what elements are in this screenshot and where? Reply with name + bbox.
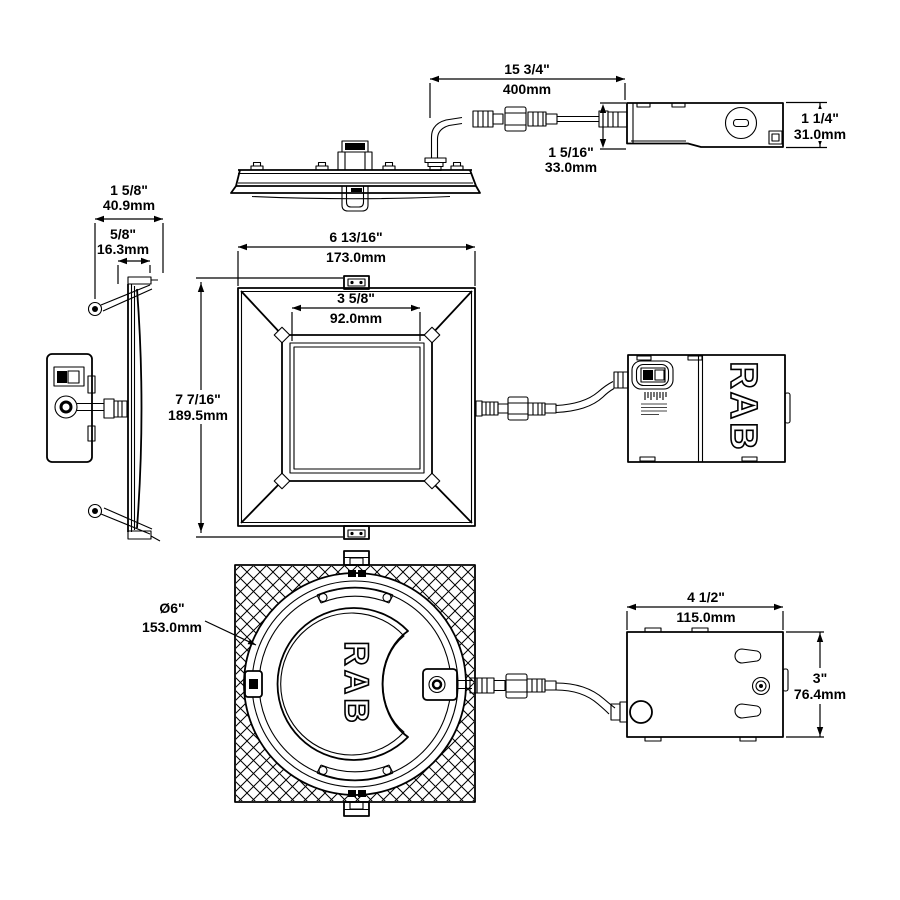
connector-whip-mid — [476, 372, 628, 420]
rab-logo-driver: RAB — [722, 361, 764, 452]
clip-bracket-bottom — [317, 765, 393, 781]
cable-bushing — [425, 158, 446, 163]
dim-jbox-width: 4 1/2" 115.0mm — [627, 589, 783, 630]
label-fine-print — [641, 404, 667, 415]
view-driver-box-top: RAB — [628, 355, 790, 462]
dim-aperture-width-inch: 3 5/8" — [337, 290, 375, 306]
dim-driver-height-mm: 31.0mm — [794, 126, 846, 142]
view-jbox-back — [627, 628, 788, 741]
dim-clip-spread-inch: 1 5/8" — [110, 182, 148, 198]
dim-face-height-inch: 7 7/16" — [175, 391, 221, 407]
cable — [432, 118, 463, 159]
dim-face-width-mm: 173.0mm — [326, 249, 386, 265]
dim-driver-height-inch: 1 1/4" — [801, 110, 839, 126]
dim-edge-thickness-mm: 16.3mm — [97, 241, 149, 257]
dim-aperture-width-mm: 92.0mm — [330, 310, 382, 326]
dim-aperture-width: 3 5/8" 92.0mm — [292, 290, 420, 341]
dim-whip-length: 15 3/4" 400mm — [430, 61, 625, 118]
view-panel-side-profile — [47, 277, 160, 541]
dim-face-height: 7 7/16" 189.5mm — [166, 278, 343, 537]
dim-face-height-mm: 189.5mm — [168, 407, 228, 423]
rab-logo-housing: RAB — [337, 641, 375, 727]
clip-bracket-top — [317, 587, 393, 603]
dim-jbox-width-mm: 115.0mm — [676, 609, 735, 625]
dim-edge-thickness: 5/8" 16.3mm — [97, 226, 150, 284]
technical-drawing-page: 15 3/4" 400mm 1 5/16" 33.0mm 1 1/4" 31.0… — [0, 0, 900, 900]
dim-housing-diameter-inch: Ø6" — [159, 600, 184, 616]
dim-clip-spread-mm: 40.9mm — [103, 197, 155, 213]
dim-jbox-height-inch: 3" — [813, 670, 827, 686]
view-panel-top-profile — [231, 118, 480, 212]
dim-driver-height: 1 1/4" 31.0mm — [786, 103, 851, 148]
dim-face-width-inch: 6 13/16" — [329, 229, 382, 245]
dim-jbox-width-inch: 4 1/2" — [687, 589, 725, 605]
dim-edge-thickness-inch: 5/8" — [110, 226, 136, 242]
spring-clip-arm-top — [101, 285, 152, 311]
dim-whip-length-inch: 15 3/4" — [504, 61, 550, 77]
dim-driver-front-height-mm: 33.0mm — [545, 159, 597, 175]
dim-housing-diameter-mm: 153.0mm — [142, 619, 202, 635]
strain-relief-bulb — [630, 701, 652, 723]
dim-whip-length-mm: 400mm — [503, 81, 551, 97]
view-housing-back: RAB — [235, 551, 475, 816]
knockout-circle — [726, 108, 757, 139]
connector-whip-bottom — [470, 674, 630, 722]
dim-driver-front-height-inch: 1 5/16" — [548, 144, 594, 160]
dim-jbox-height: 3" 76.4mm — [786, 632, 849, 737]
dim-jbox-height-mm: 76.4mm — [794, 686, 846, 702]
label-barcode — [645, 392, 666, 400]
view-driver-box-side — [627, 103, 783, 147]
dimensional-drawing: 15 3/4" 400mm 1 5/16" 33.0mm 1 1/4" 31.0… — [0, 0, 900, 900]
spring-clip-arm-bottom — [101, 508, 152, 534]
